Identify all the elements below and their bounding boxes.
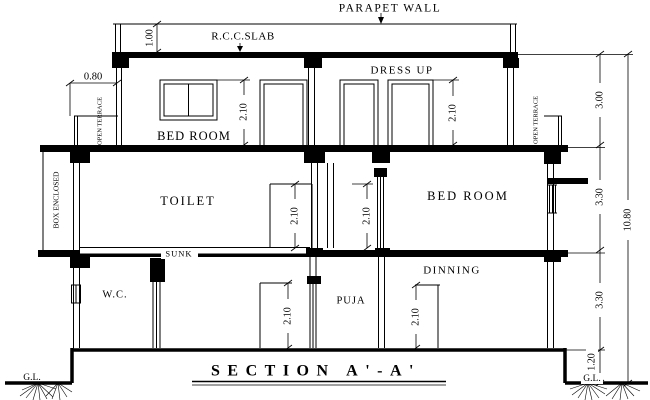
ground-floor-walls — [70, 248, 561, 348]
dim-top-floor-height: 3.00 — [594, 91, 605, 109]
title-underline — [192, 382, 446, 386]
first-floor-right-wall — [544, 152, 588, 250]
rcc-slab-label: R.C.C.SLAB — [211, 31, 274, 43]
section-drawing: PARAPET WALL R.C.C.SLAB 1.00 0.80 DRESS … — [0, 0, 650, 400]
rcc-leader-arrow — [237, 46, 243, 52]
room-toilet: TOILET — [160, 194, 216, 208]
drawing-title: SECTION A'-A' — [211, 363, 421, 380]
dim-ground-floor-height: 3.30 — [594, 291, 605, 309]
earth-hatch-right — [570, 383, 640, 400]
bedroom-window — [160, 80, 217, 120]
dim-plinth-height: 1.20 — [586, 353, 597, 371]
box-enclosed-label: BOX ENCLOSED — [52, 171, 61, 228]
dim-wc-door: 2.10 — [282, 307, 293, 325]
sunk-label: SUNK — [165, 248, 192, 258]
box-enclosed — [43, 152, 90, 250]
room-dress-up: DRESS UP — [370, 65, 433, 77]
first-floor-walls — [304, 152, 390, 248]
dim-first-floor-height: 3.30 — [594, 188, 605, 206]
room-puja: PUJA — [336, 295, 365, 306]
room-bed-room-first: BED ROOM — [427, 189, 509, 203]
earth-hatch-left — [20, 383, 72, 400]
dim-top-bed-door: 2.10 — [238, 103, 249, 121]
open-terrace-right-label: OPEN TERRACE — [532, 96, 539, 144]
first-floor-slab — [40, 145, 568, 152]
rcc-slab-band — [112, 52, 518, 58]
room-dinning: DINNING — [423, 265, 481, 277]
parapet-wall — [113, 24, 517, 52]
dim-parapet: 1.00 — [144, 29, 155, 47]
chajja — [548, 178, 588, 184]
dim-dress-up-door: 2.10 — [447, 104, 458, 122]
open-terrace-left-label: OPEN TERRACE — [96, 97, 103, 145]
dim-dinning-door: 2.10 — [410, 308, 421, 326]
bedroom-door — [260, 80, 307, 145]
gl-left-label: G.L. — [23, 373, 40, 383]
room-bed-room-top: BED ROOM — [157, 129, 231, 143]
room-wc: W.C. — [102, 289, 127, 300]
terrace-parapet-right — [544, 116, 562, 145]
text-backgrounds — [161, 83, 634, 384]
dim-toilet-door: 2.10 — [289, 207, 300, 225]
parapet-wall-label: PARAPET WALL — [339, 3, 441, 15]
dim-terrace: 0.80 — [84, 71, 102, 82]
parapet-leader-arrow — [378, 17, 384, 24]
dressup-doors — [340, 80, 433, 145]
dim-first-bed-door: 2.10 — [361, 207, 372, 225]
dim-total-height: 10.80 — [622, 209, 633, 232]
ground-ceiling-slab — [38, 248, 568, 258]
gl-right-label: G.L. — [583, 374, 600, 384]
